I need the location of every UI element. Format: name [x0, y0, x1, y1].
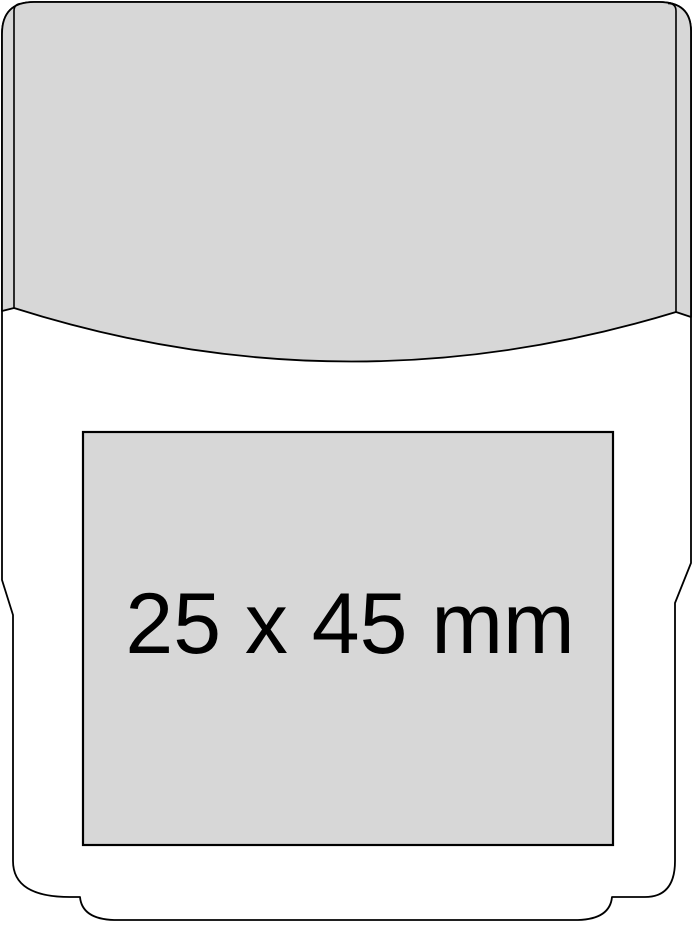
template-drawing: 25 x 45 mm [0, 0, 693, 925]
product-template-diagram: 25 x 45 mm [0, 0, 693, 925]
flap-panel [2, 2, 691, 362]
print-area-label: 25 x 45 mm [125, 576, 574, 672]
